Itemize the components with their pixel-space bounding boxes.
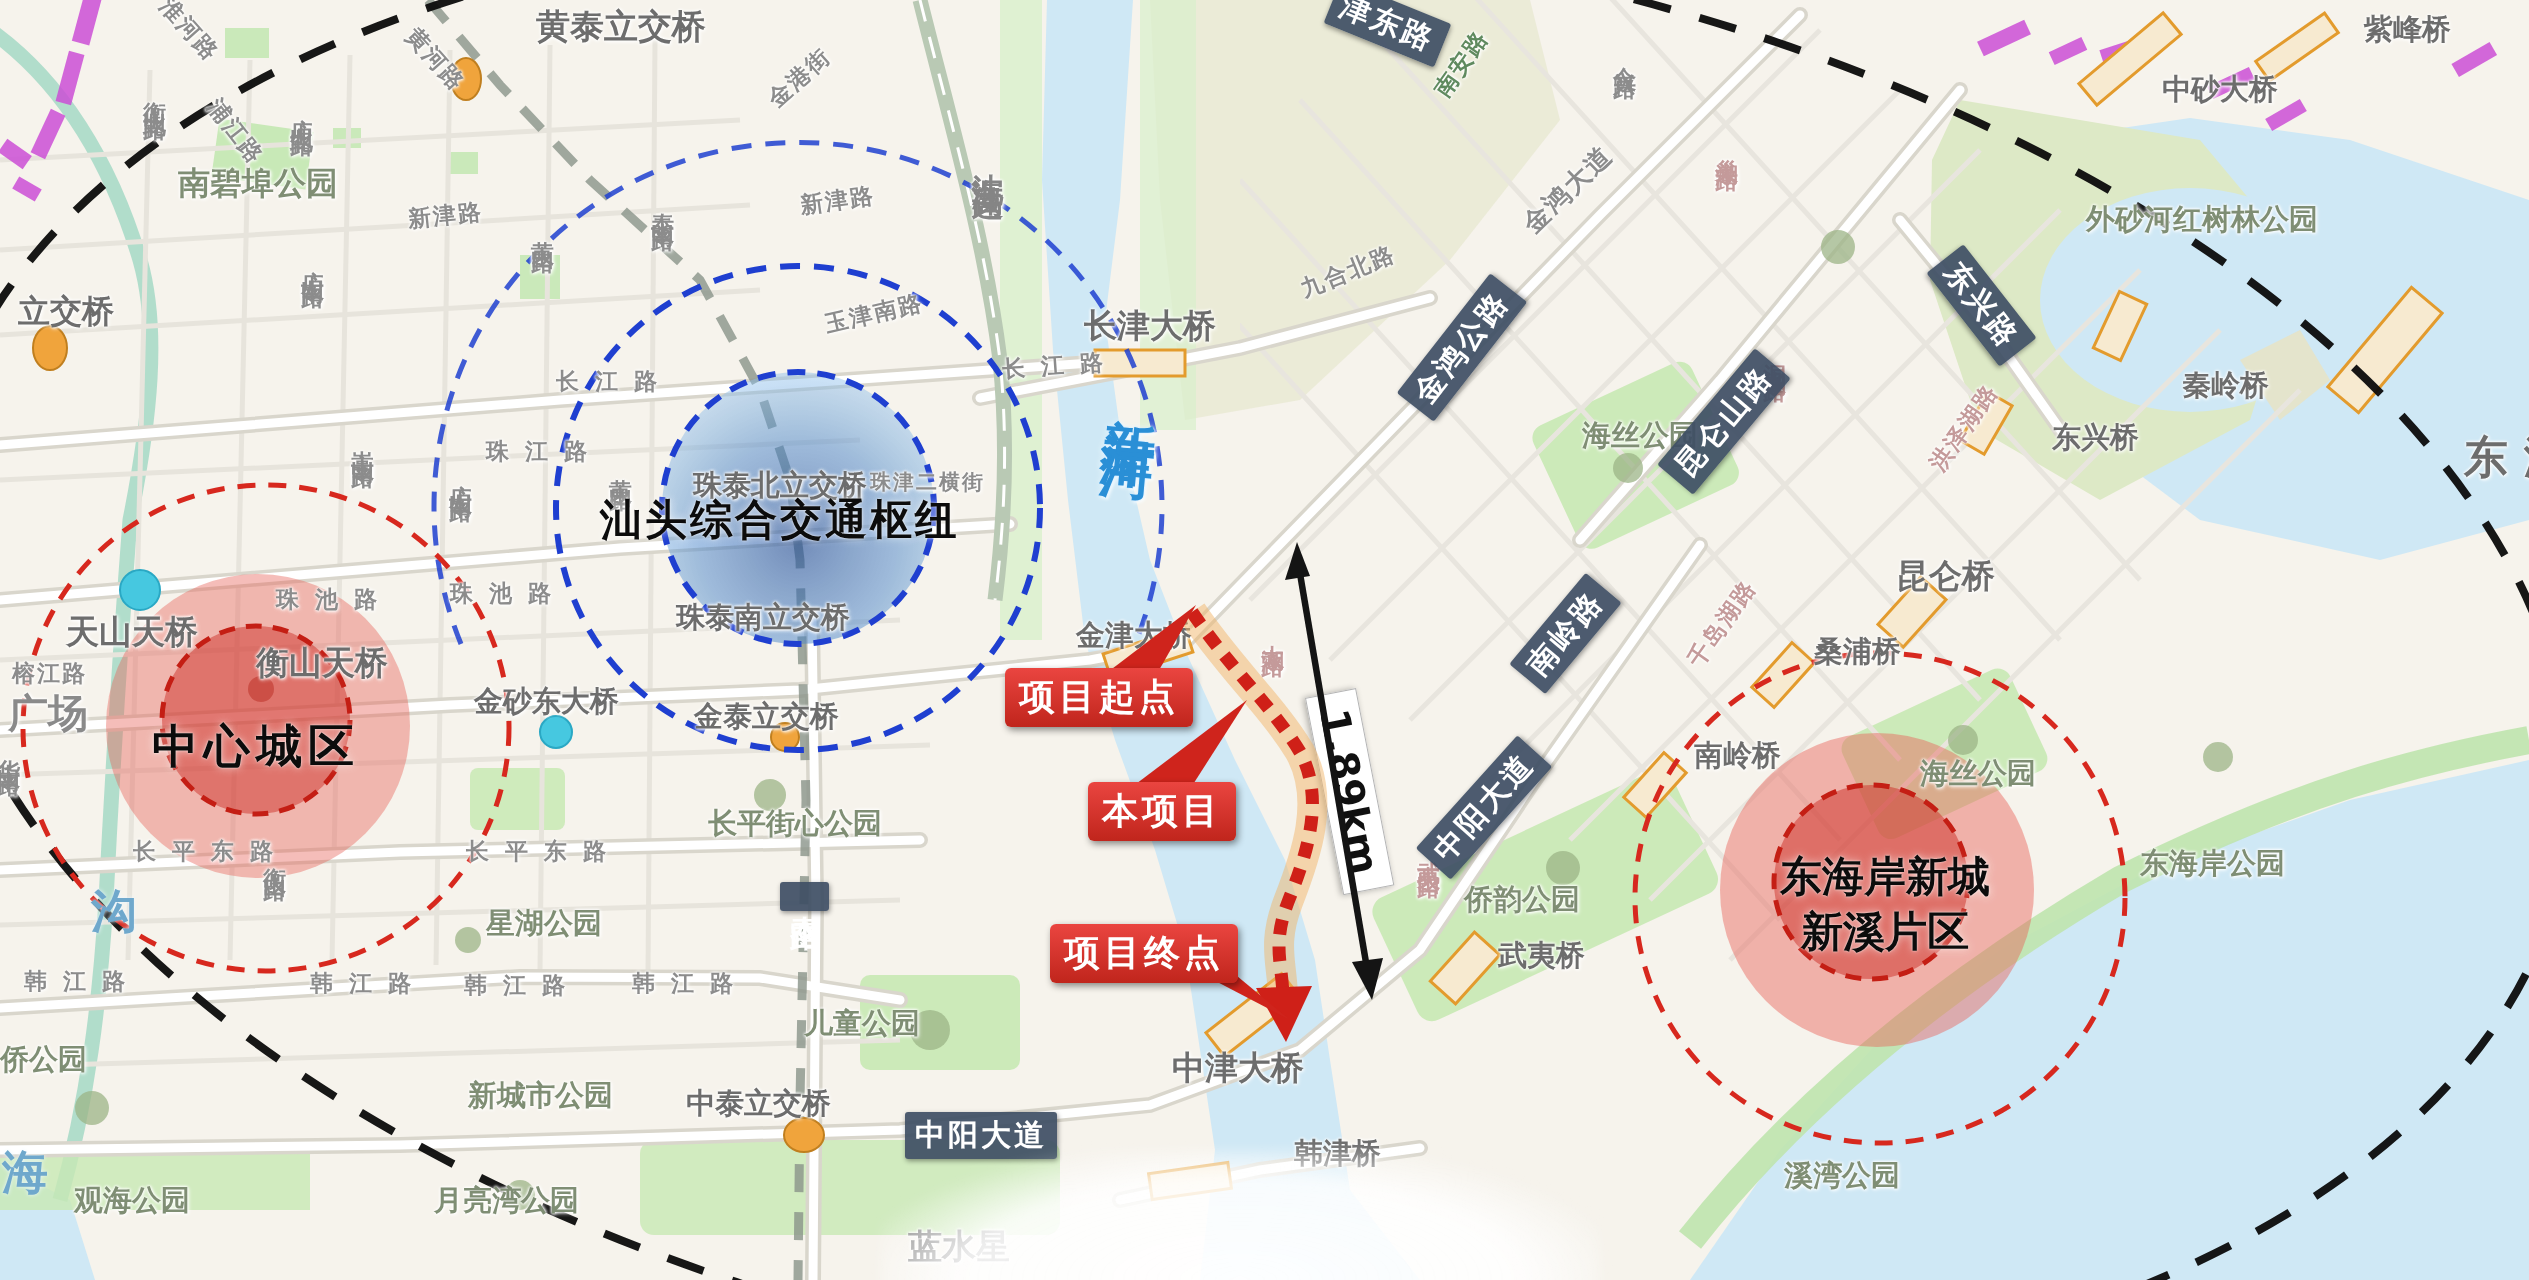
project-name-badge: 本项目 xyxy=(1088,782,1236,841)
measure-arrow-top xyxy=(1285,542,1310,580)
project-route-arrowhead xyxy=(1256,986,1312,1042)
project-end-badge: 项目终点 xyxy=(1050,924,1238,983)
project-start-badge: 项目起点 xyxy=(1005,668,1193,727)
map-canvas: 淮河路 衡山北路 浦江路 庐山北路 黄河路 新津路 新津路 泰山南路 黄山路 黄… xyxy=(0,0,2529,1280)
project-annotation-svg xyxy=(0,0,2529,1280)
measure-arrow-bottom xyxy=(1352,958,1383,1000)
